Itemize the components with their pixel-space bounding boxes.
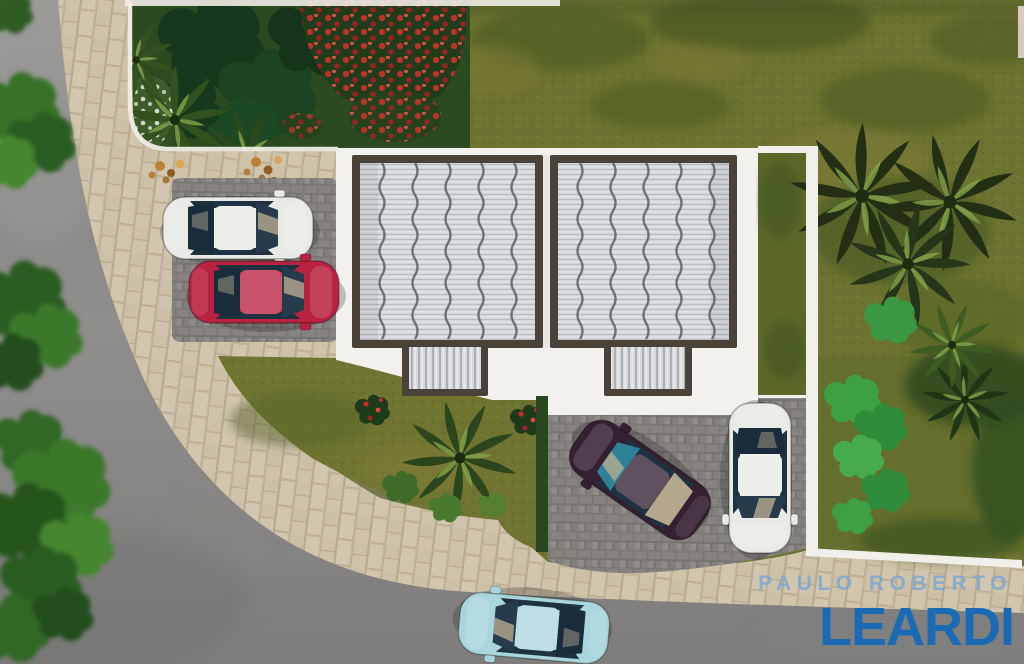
roof-corrugation-left <box>360 163 535 340</box>
wall-sliver <box>1018 6 1024 58</box>
aerial-render <box>0 0 1024 664</box>
white-sedan-parked <box>160 190 320 268</box>
roof-shade <box>360 163 378 340</box>
roof-shade <box>711 163 729 340</box>
top-wall <box>125 0 560 6</box>
house-gap <box>543 155 550 348</box>
right-wall <box>806 148 818 556</box>
backyard <box>818 338 1024 562</box>
white-sedan-vertical <box>720 400 798 560</box>
hedge-divider <box>536 396 548 552</box>
entrance-canopy-right <box>604 340 692 396</box>
listing-photo: PAULO ROBERTO LEARDI <box>0 0 1024 664</box>
entrance-canopy-left <box>402 340 488 396</box>
red-sedan-parked <box>186 254 346 332</box>
